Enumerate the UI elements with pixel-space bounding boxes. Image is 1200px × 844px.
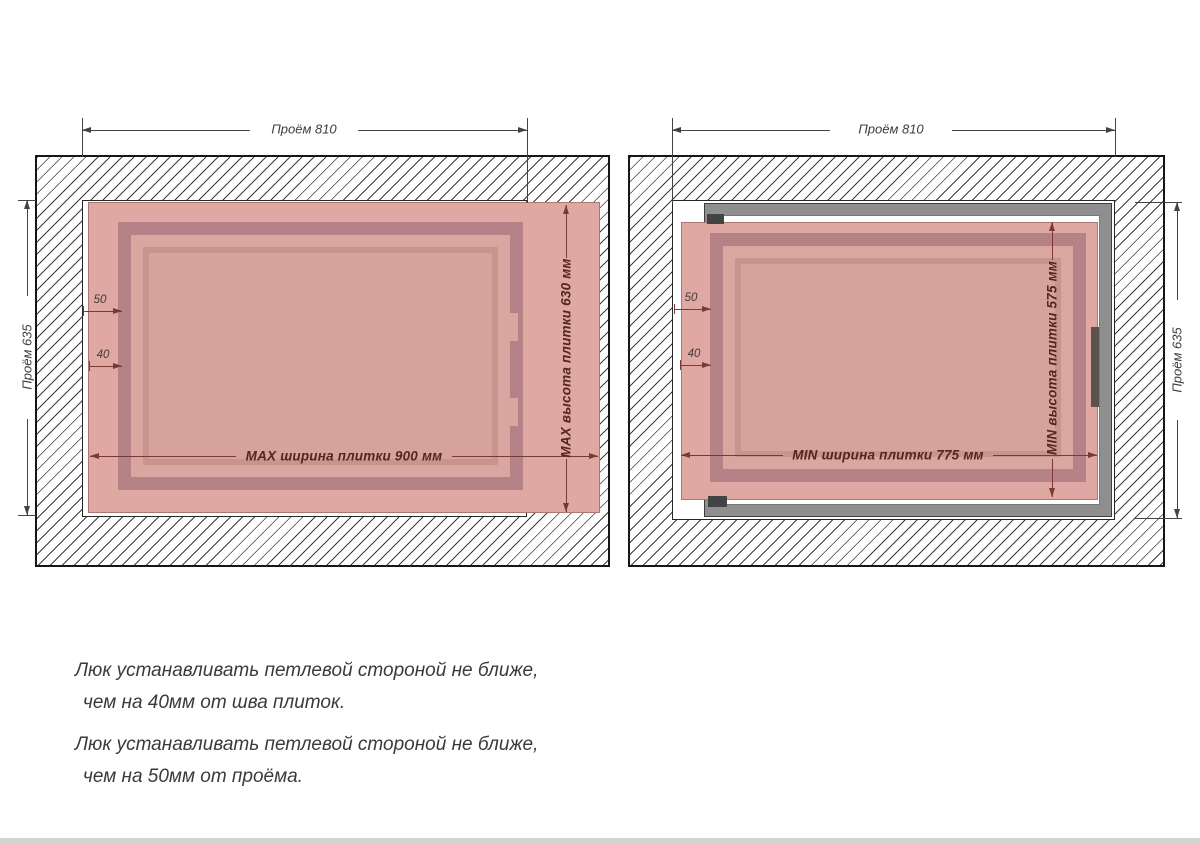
dim-line-tile-height — [566, 459, 567, 512]
dim-line-opening-width — [358, 130, 527, 131]
dim-line-opening-height — [1177, 202, 1178, 300]
installation-note-1: Люк устанавливать петлевой стороной не б… — [75, 655, 538, 719]
dim-line-offset-50 — [674, 309, 711, 310]
hinge-bracket — [708, 496, 727, 507]
dim-label-offset-40: 40 — [97, 349, 110, 361]
dim-line-opening-height — [27, 200, 28, 296]
dim-label-opening-height: Проём 635 — [20, 324, 35, 389]
dim-label-opening-width: Проём 810 — [271, 122, 336, 137]
dim-line-tile-height — [1052, 222, 1053, 260]
latch-notch — [506, 313, 518, 341]
dim-label-tile-height: MAX высота плитки 630 мм — [559, 258, 574, 457]
bottom-edge-bar — [0, 838, 1200, 844]
dim-label-tile-width: MAX ширина плитки 900 мм — [246, 449, 443, 464]
dim-line-offset-40 — [680, 365, 711, 366]
extension-line — [18, 515, 36, 516]
dim-line-tile-width — [452, 456, 598, 457]
extension-line — [1135, 518, 1182, 519]
note-line: Люк устанавливать петлевой стороной не б… — [75, 729, 538, 761]
dim-line-offset-50 — [83, 311, 122, 312]
dim-label-offset-40: 40 — [688, 348, 701, 360]
note-line: чем на 50мм от проёма. — [83, 761, 538, 793]
installation-note-2: Люк устанавливать петлевой стороной не б… — [75, 729, 538, 793]
dim-label-opening-height: Проём 635 — [1170, 327, 1185, 392]
dim-label-tile-width: MIN ширина плитки 775 мм — [792, 448, 983, 463]
note-line: чем на 40мм от шва плиток. — [83, 687, 538, 719]
latch-bar — [1091, 327, 1099, 407]
dim-line-offset-40 — [89, 366, 122, 367]
dim-line-tile-width — [90, 456, 236, 457]
dim-line-tile-height — [566, 205, 567, 258]
dim-line-tile-width — [993, 455, 1097, 456]
dim-label-offset-50: 50 — [685, 292, 698, 304]
latch-notch — [506, 398, 518, 426]
hatch-door-panel — [149, 253, 492, 459]
dim-line-opening-width — [672, 130, 830, 131]
dim-line-tile-width — [681, 455, 783, 456]
installation-drawing-page: Проём 810 Проём 635 50 40 MAX ширина пли… — [0, 0, 1200, 844]
dim-label-opening-width: Проём 810 — [858, 122, 923, 137]
dim-line-tile-height — [1052, 459, 1053, 497]
note-line: Люк устанавливать петлевой стороной не б… — [75, 655, 538, 687]
dim-line-opening-width — [952, 130, 1115, 131]
extension-line — [1115, 118, 1116, 157]
dim-line-opening-width — [82, 130, 250, 131]
dim-line-opening-height — [27, 419, 28, 515]
hinge-bracket — [707, 214, 724, 224]
dim-label-offset-50: 50 — [94, 294, 107, 306]
dim-label-tile-height: MIN высота плитки 575 мм — [1045, 261, 1060, 455]
extension-line — [82, 118, 83, 157]
hatch-door-panel — [741, 264, 1055, 451]
dim-line-opening-height — [1177, 420, 1178, 518]
extension-line — [527, 118, 528, 203]
